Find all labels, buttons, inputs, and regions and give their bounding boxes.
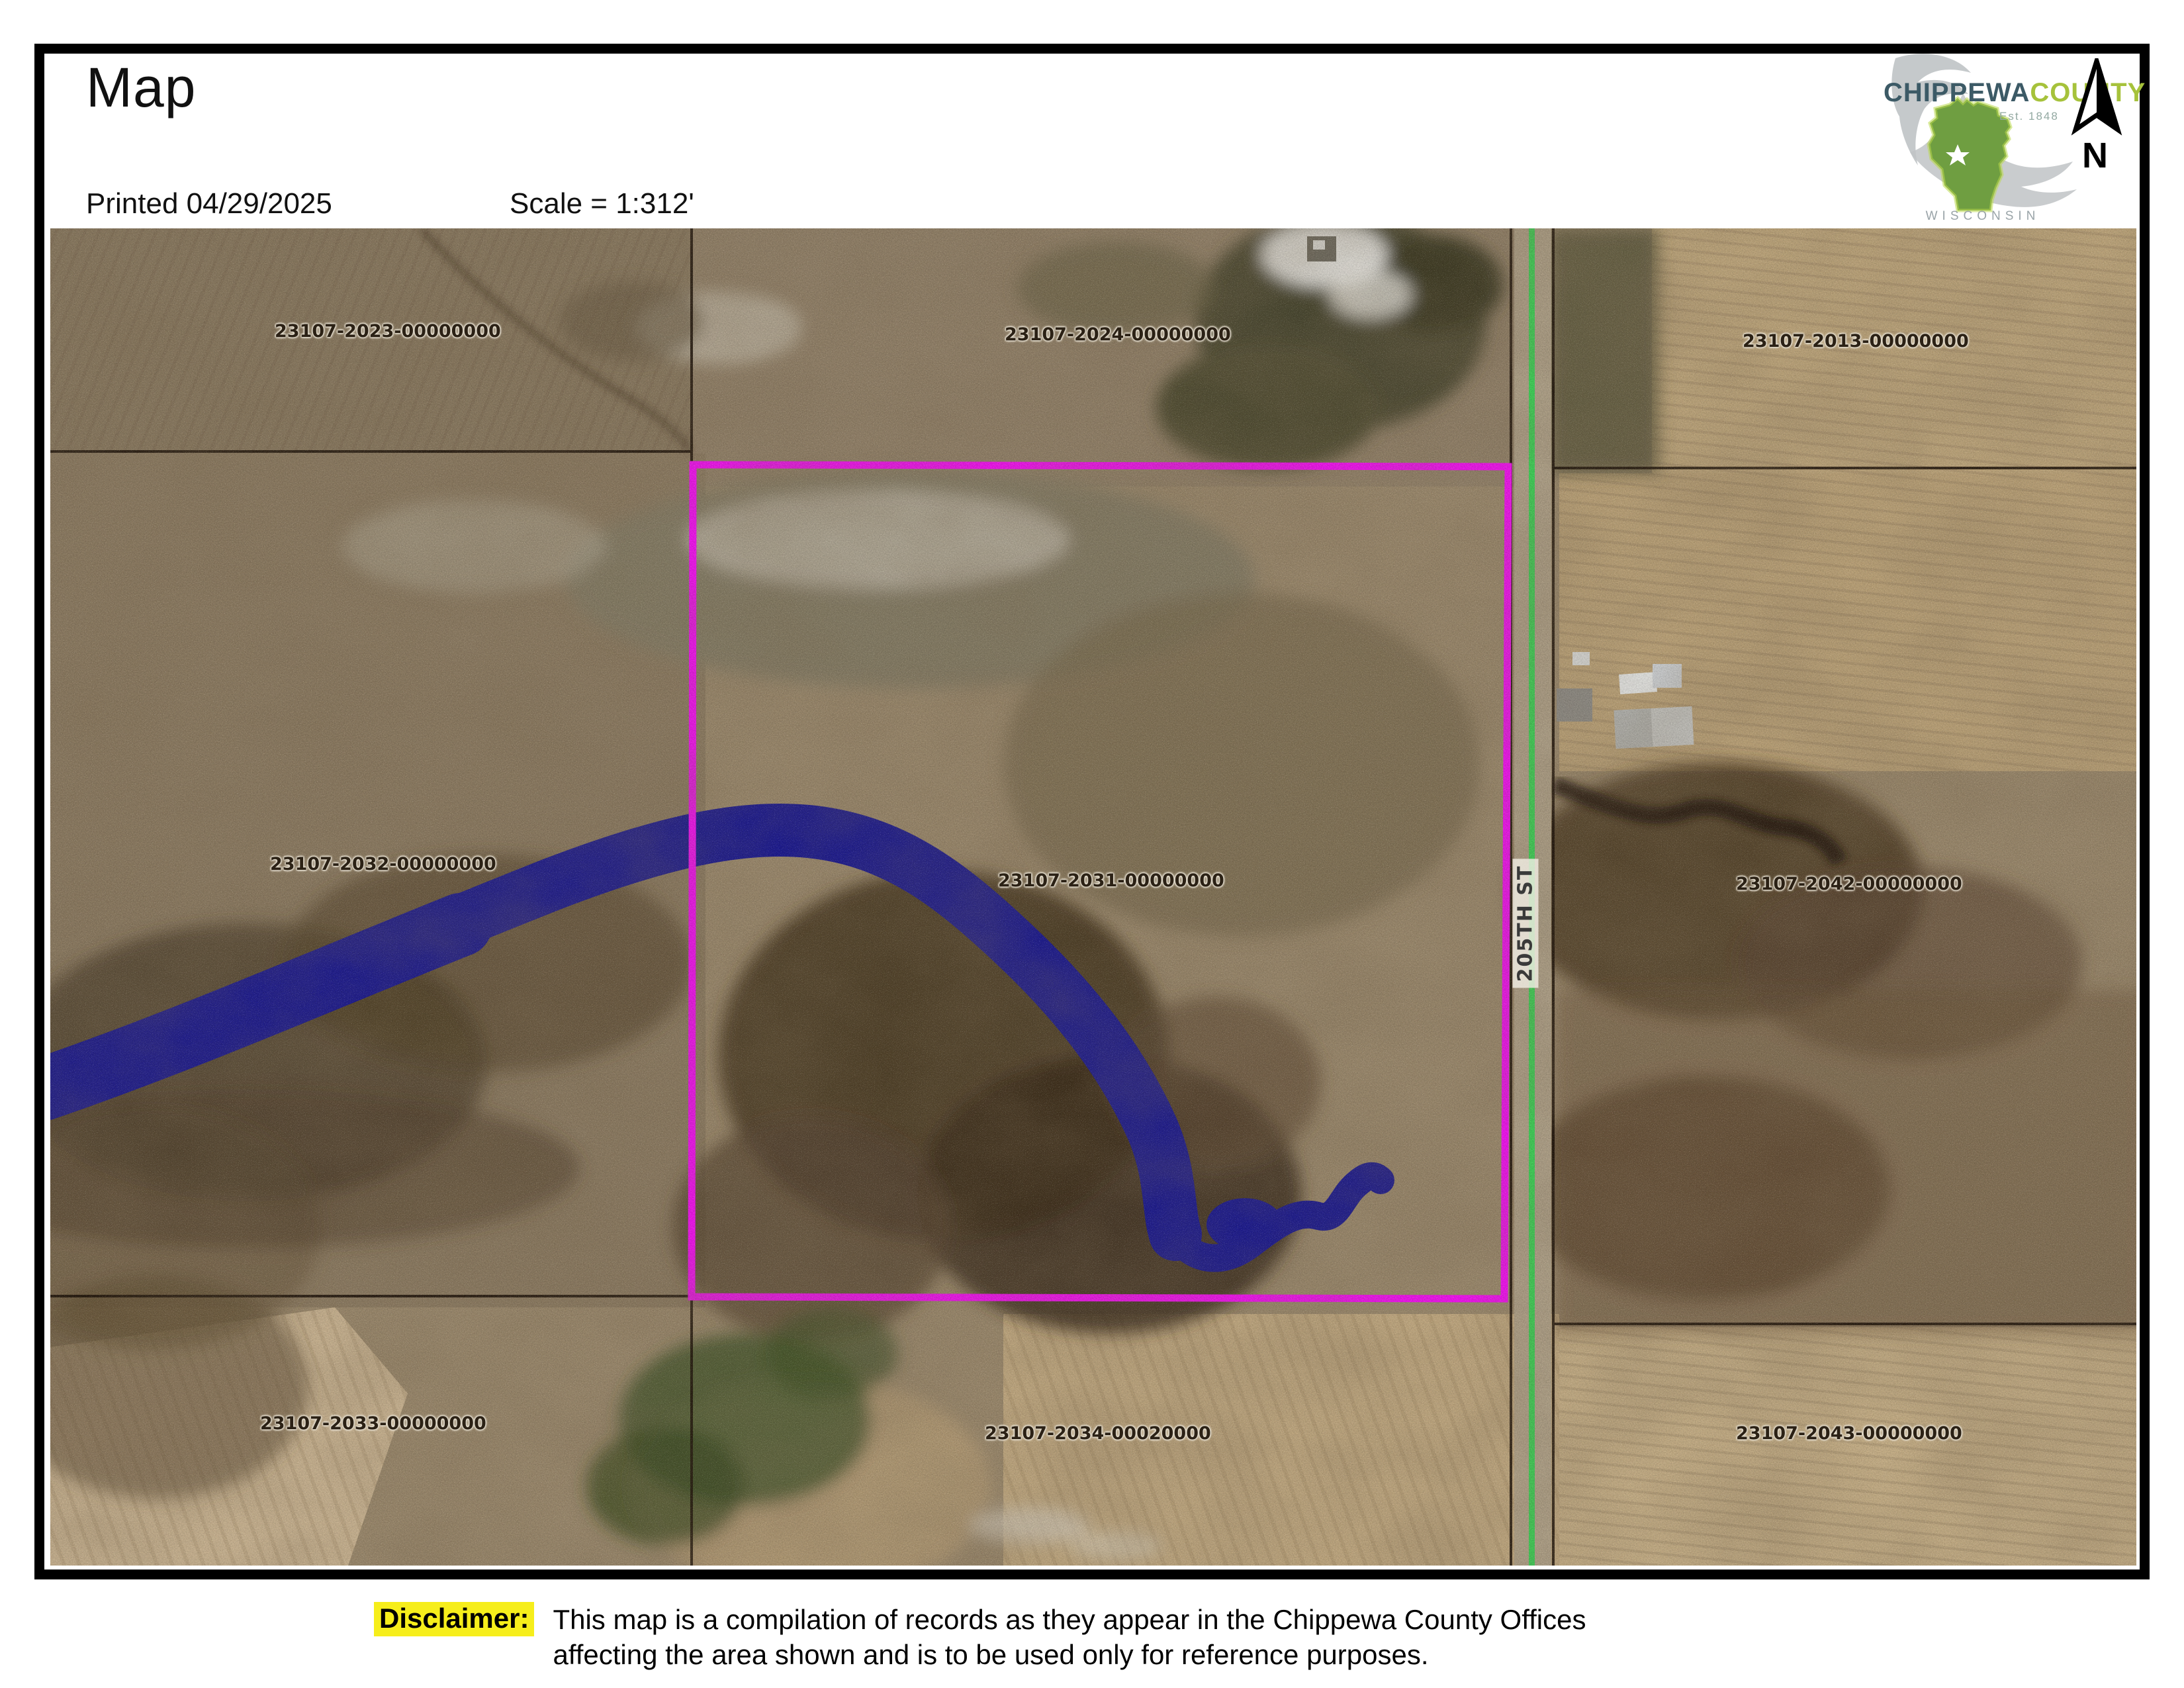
parcel-label: 23107-2024-00000000 xyxy=(1005,324,1231,345)
disclaimer-label: Disclaimer: xyxy=(374,1602,534,1636)
road-name-label: 205TH ST xyxy=(1513,859,1539,988)
page-title: Map xyxy=(86,56,196,120)
north-label: N xyxy=(2082,135,2108,176)
disclaimer: Disclaimer: This map is a compilation of… xyxy=(374,1602,1586,1672)
parcel-label: 23107-2042-00000000 xyxy=(1736,874,1962,894)
parcel-label: 23107-2033-00000000 xyxy=(260,1413,486,1434)
parcel-label: 23107-2031-00000000 xyxy=(998,870,1224,891)
printed-date: Printed 04/29/2025 xyxy=(86,187,332,220)
north-arrow-icon xyxy=(2069,58,2124,138)
map-canvas: 23107-2023-00000000 23107-2024-00000000 … xyxy=(50,228,2136,1566)
map-scale: Scale = 1:312' xyxy=(510,187,694,220)
north-arrow: N xyxy=(2069,58,2124,171)
disclaimer-line1: This map is a compilation of records as … xyxy=(553,1602,1586,1637)
map-print-page: Map Printed 04/29/2025 Scale = 1:312' CH… xyxy=(0,0,2184,1688)
parcel-label: 23107-2013-00000000 xyxy=(1743,331,1969,352)
parcel-label: 23107-2034-00020000 xyxy=(985,1423,1211,1444)
parcel-label: 23107-2023-00000000 xyxy=(275,321,501,342)
logo-est-text: Est. 1848 xyxy=(1999,110,2059,123)
parcel-label: 23107-2032-00000000 xyxy=(270,854,496,874)
parcel-label: 23107-2043-00000000 xyxy=(1736,1423,1962,1444)
disclaimer-line2: affecting the area shown and is to be us… xyxy=(553,1637,1586,1672)
logo-chippewa-text: CHIPPEWA xyxy=(1884,78,2030,107)
logo-state-text: WISCONSIN xyxy=(1884,209,2082,224)
photo-grain xyxy=(50,228,2136,1566)
disclaimer-text: This map is a compilation of records as … xyxy=(553,1602,1586,1672)
aerial-imagery xyxy=(50,228,2136,1566)
